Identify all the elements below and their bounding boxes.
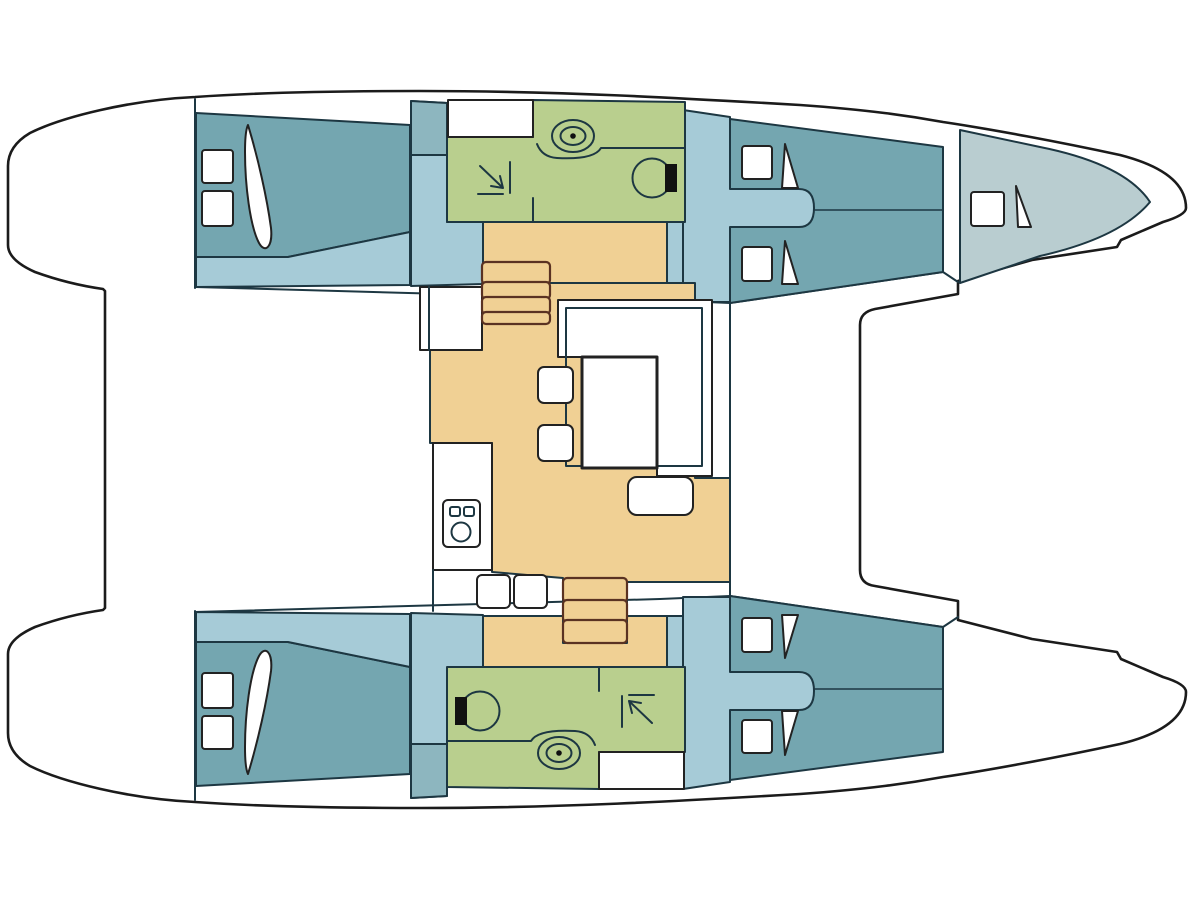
companionway-port-steps — [482, 262, 550, 324]
head-starboard — [447, 667, 685, 789]
aft-cabin-berth — [196, 113, 410, 257]
toilet-tank — [665, 164, 677, 192]
corridor-locker — [411, 101, 447, 155]
nav-seat — [628, 477, 693, 515]
stove-icon — [443, 500, 480, 547]
shower-tray — [448, 100, 533, 137]
hatch-icon — [202, 150, 233, 183]
sink-drain — [570, 133, 576, 139]
stair-step — [482, 312, 550, 324]
saloon-table — [582, 357, 657, 468]
pillow-icon — [742, 146, 772, 179]
pillow-icon — [742, 247, 772, 281]
head-port — [447, 100, 685, 222]
stair-step — [563, 578, 627, 602]
companionway-starboard-steps — [563, 578, 627, 643]
hatch-icon — [971, 192, 1004, 226]
floor-plan-canvas — [0, 0, 1200, 899]
catamaran-floor-plan — [0, 0, 1200, 899]
stair-step — [482, 262, 550, 284]
stool — [514, 575, 547, 608]
hatch-icon — [202, 191, 233, 226]
stair-step — [563, 600, 627, 622]
forward-landing-strip — [667, 222, 683, 283]
stool — [538, 367, 573, 403]
stool — [538, 425, 573, 461]
stair-step — [563, 620, 627, 643]
forepeak-port — [960, 130, 1150, 283]
stool — [477, 575, 510, 608]
